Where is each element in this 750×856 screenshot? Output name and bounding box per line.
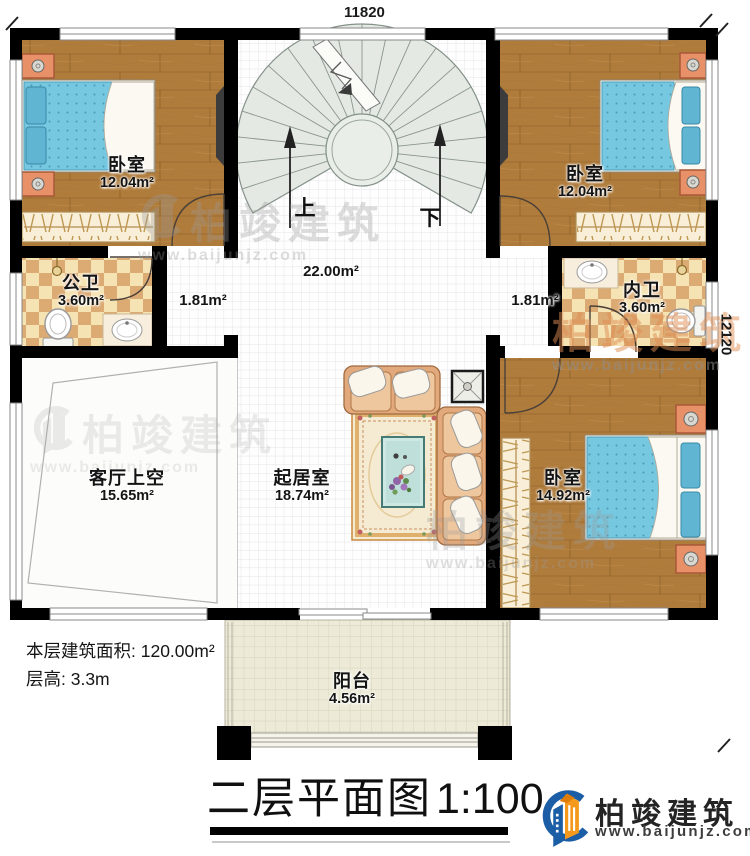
room-label-private-bath: 内卫 3.60m²	[619, 281, 665, 317]
room-label-corridor-left: 1.81m²	[179, 293, 227, 310]
room-label-bedroom-tl: 卧室 12.04m²	[100, 156, 154, 192]
wardrobe-icon	[502, 438, 530, 608]
title-underline-thin	[212, 841, 510, 843]
tv-icon	[216, 86, 224, 166]
sink-icon	[103, 314, 152, 346]
floor-info: 本层建筑面积: 120.00m² 层高: 3.3m	[26, 637, 215, 693]
brand-logo-icon	[538, 786, 592, 848]
room-label-corridor-right: 1.81m²	[511, 293, 559, 310]
title-underline	[210, 827, 508, 835]
room-label-bedroom-br: 卧室 14.92m²	[536, 469, 590, 505]
drawing-title-text: 二层平面图	[207, 775, 432, 823]
bed-icon	[600, 80, 706, 172]
sink-icon	[564, 258, 618, 288]
floor-plan-page: 柏竣建筑 www.baijunjz.com 柏竣建筑 www.baijunjz.…	[0, 0, 750, 856]
floor-plan-drawing	[0, 0, 750, 856]
room-label-living-void: 客厅上空 15.65m²	[89, 469, 165, 505]
dimension-right: 12120	[717, 314, 734, 356]
wardrobe-icon	[576, 212, 706, 242]
stairs-up-label: 上	[295, 192, 316, 222]
brand-url: www.baijunjz.com	[595, 823, 750, 840]
drawing-scale: 1:100	[436, 775, 544, 823]
brand-block: 柏竣建筑 www.baijunjz.com	[538, 786, 748, 848]
toilet-icon	[43, 309, 73, 347]
floor-area-text: 本层建筑面积: 120.00m²	[26, 637, 215, 665]
room-label-hall: 22.00m²	[303, 264, 359, 281]
wardrobe-icon	[22, 212, 155, 242]
dimension-top: 11820	[344, 4, 385, 21]
stairs-down-label: 下	[420, 202, 441, 232]
room-label-living: 起居室 18.74m²	[274, 469, 331, 505]
side-table-icon	[452, 371, 483, 402]
drawing-title: 二层平面图1:100	[207, 764, 544, 826]
tv-icon	[500, 86, 508, 166]
coffee-table-icon	[382, 437, 424, 507]
room-label-bedroom-tr: 卧室 12.04m²	[558, 165, 612, 201]
toilet-icon	[667, 306, 705, 336]
room-label-public-bath: 公卫 3.60m²	[58, 274, 104, 310]
bed-icon	[585, 435, 706, 540]
room-label-balcony: 阳台 4.56m²	[329, 672, 375, 708]
sliding-door-icon	[299, 609, 431, 619]
floor-height-text: 层高: 3.3m	[26, 665, 215, 693]
